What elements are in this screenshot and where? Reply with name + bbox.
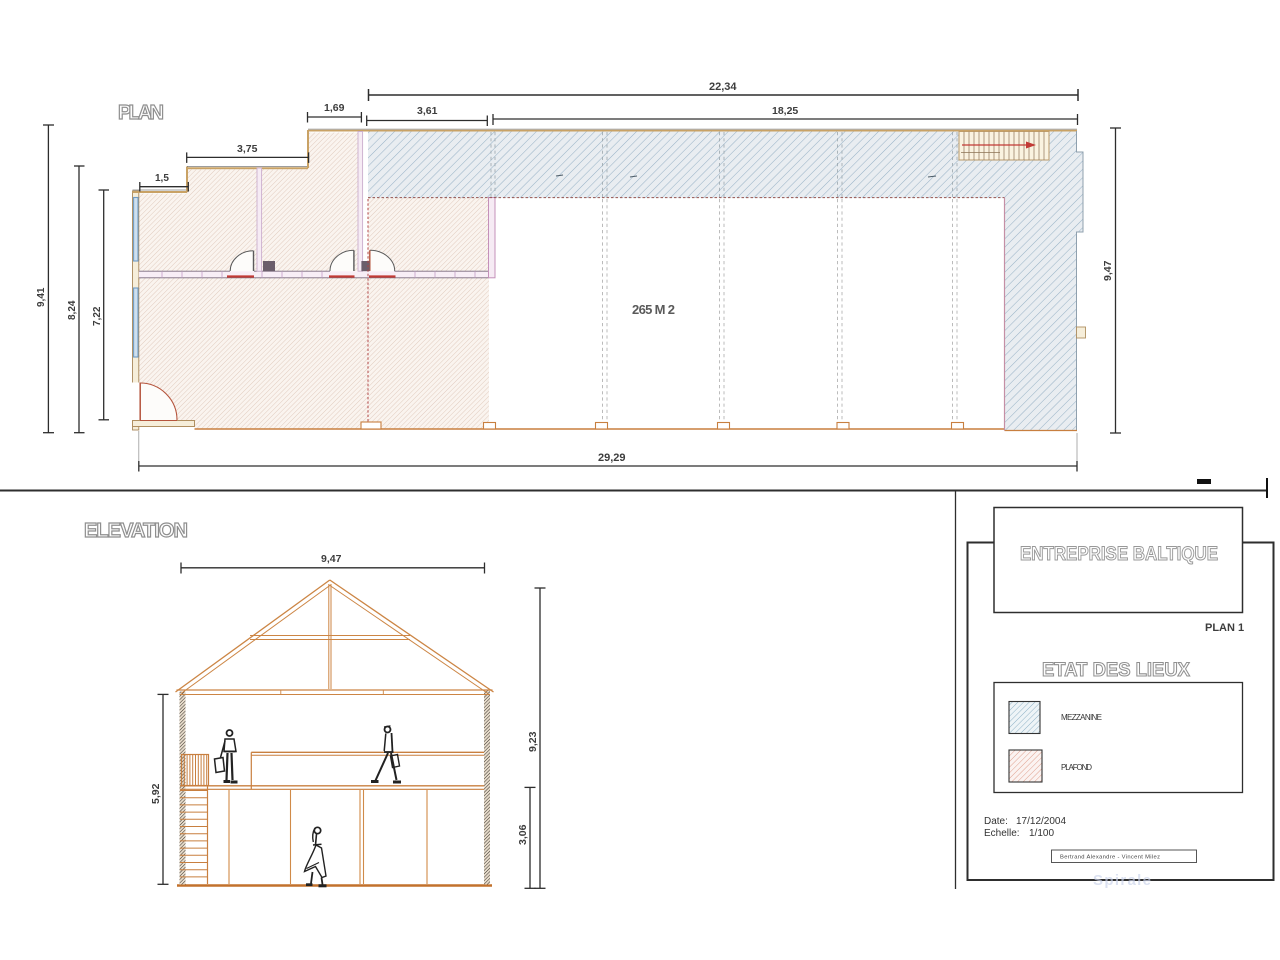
svg-text:ELEVATION: ELEVATION bbox=[84, 520, 190, 542]
svg-text:Date:: Date: bbox=[984, 816, 1008, 827]
svg-text:PLAN 1: PLAN 1 bbox=[1205, 622, 1244, 634]
svg-text:9,41: 9,41 bbox=[36, 287, 47, 307]
svg-text:3,06: 3,06 bbox=[517, 824, 529, 845]
svg-text:29,29: 29,29 bbox=[598, 452, 626, 464]
svg-text:5,92: 5,92 bbox=[150, 783, 162, 804]
svg-text:ETAT DES LIEUX: ETAT DES LIEUX bbox=[1042, 660, 1190, 681]
svg-text:MEZZANINE: MEZZANINE bbox=[1061, 713, 1102, 722]
svg-text:3,75: 3,75 bbox=[237, 143, 258, 155]
svg-text:17/12/2004: 17/12/2004 bbox=[1016, 816, 1066, 827]
svg-text:PLAN: PLAN bbox=[118, 102, 166, 124]
svg-text:7,22: 7,22 bbox=[92, 306, 103, 326]
svg-text:9,47: 9,47 bbox=[321, 553, 342, 565]
svg-text:9,47: 9,47 bbox=[1102, 260, 1114, 281]
svg-text:22,34: 22,34 bbox=[709, 81, 737, 93]
svg-text:ENTREPRISE BALTIQUE: ENTREPRISE BALTIQUE bbox=[1020, 544, 1218, 565]
svg-text:3,61: 3,61 bbox=[417, 105, 438, 117]
svg-text:18,25: 18,25 bbox=[772, 105, 798, 117]
svg-text:1,5: 1,5 bbox=[155, 173, 169, 184]
svg-text:265 M 2: 265 M 2 bbox=[632, 302, 675, 317]
svg-text:1,69: 1,69 bbox=[324, 102, 345, 114]
svg-text:PLAFOND: PLAFOND bbox=[1061, 763, 1092, 772]
svg-text:Spirale: Spirale bbox=[1093, 872, 1151, 889]
svg-text:Echelle:: Echelle: bbox=[984, 828, 1020, 839]
svg-text:9,23: 9,23 bbox=[527, 731, 539, 752]
svg-text:Bertrand Alexandre - Vincent M: Bertrand Alexandre - Vincent Milez bbox=[1060, 855, 1160, 861]
svg-text:1/100: 1/100 bbox=[1029, 828, 1054, 839]
svg-text:8,24: 8,24 bbox=[67, 300, 78, 320]
